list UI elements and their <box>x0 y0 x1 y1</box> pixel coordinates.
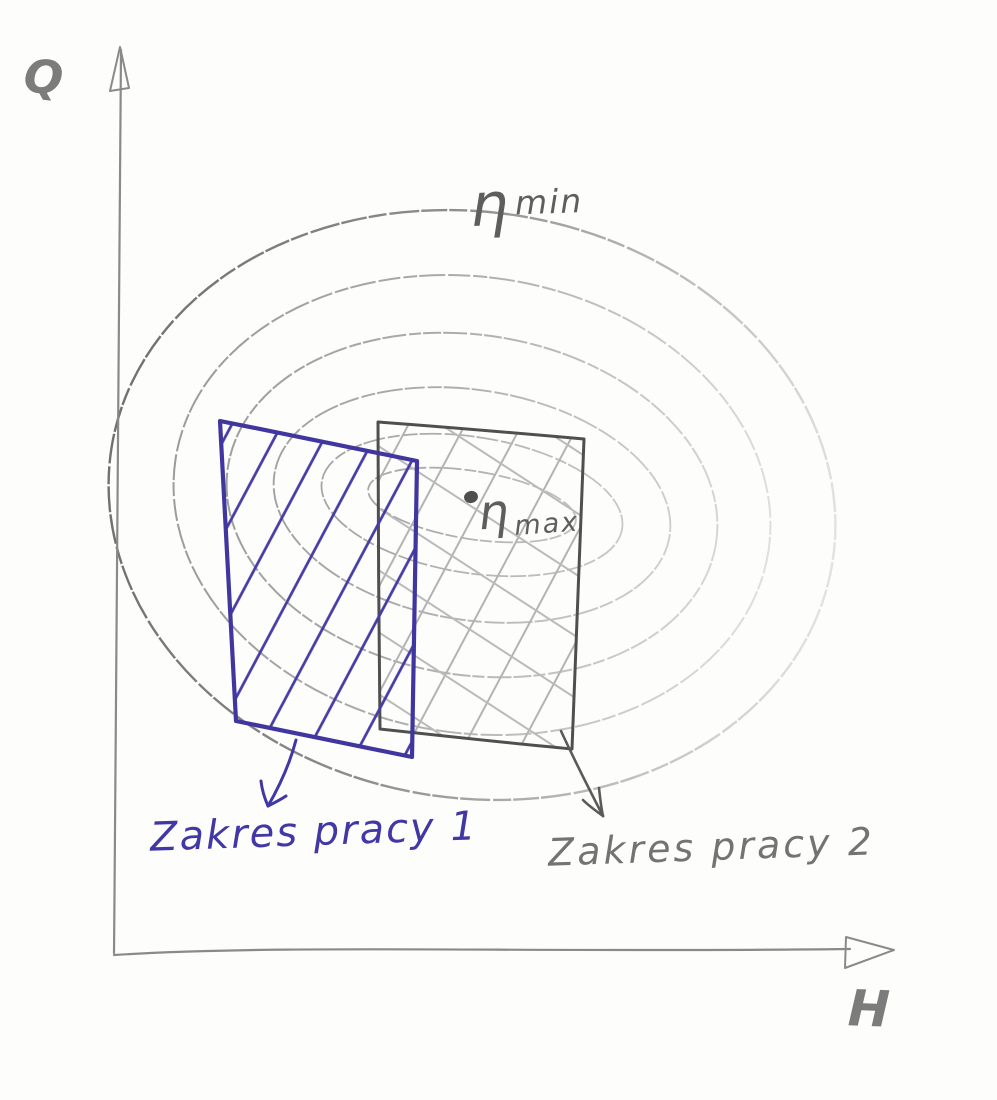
y-axis-label: Q <box>22 52 66 102</box>
sketch-page: Q H η min η max Zakres pracy 1 Zakres pr… <box>0 0 997 1100</box>
figure-canvas <box>0 0 997 1100</box>
eta-min-label: η min <box>469 172 584 236</box>
eta-max-symbol: η <box>476 487 510 537</box>
region-2-label: Zakres pracy 2 <box>547 822 875 871</box>
y-axis-line <box>114 50 121 953</box>
region-1-rect <box>220 421 417 757</box>
region-1-hatch <box>220 421 417 757</box>
x-axis-line <box>114 949 850 955</box>
eta-max-label: η max <box>476 483 580 543</box>
eta-min-suffix: min <box>514 184 583 219</box>
region-1-label: Zakres pracy 1 <box>149 806 478 857</box>
x-axis-arrowhead <box>845 937 894 968</box>
eta-max-suffix: max <box>513 509 580 540</box>
eta-min-symbol: η <box>469 175 509 236</box>
region-2-arrow <box>561 731 603 816</box>
y-axis-arrowhead <box>110 47 129 91</box>
x-axis-label: H <box>847 983 891 1034</box>
